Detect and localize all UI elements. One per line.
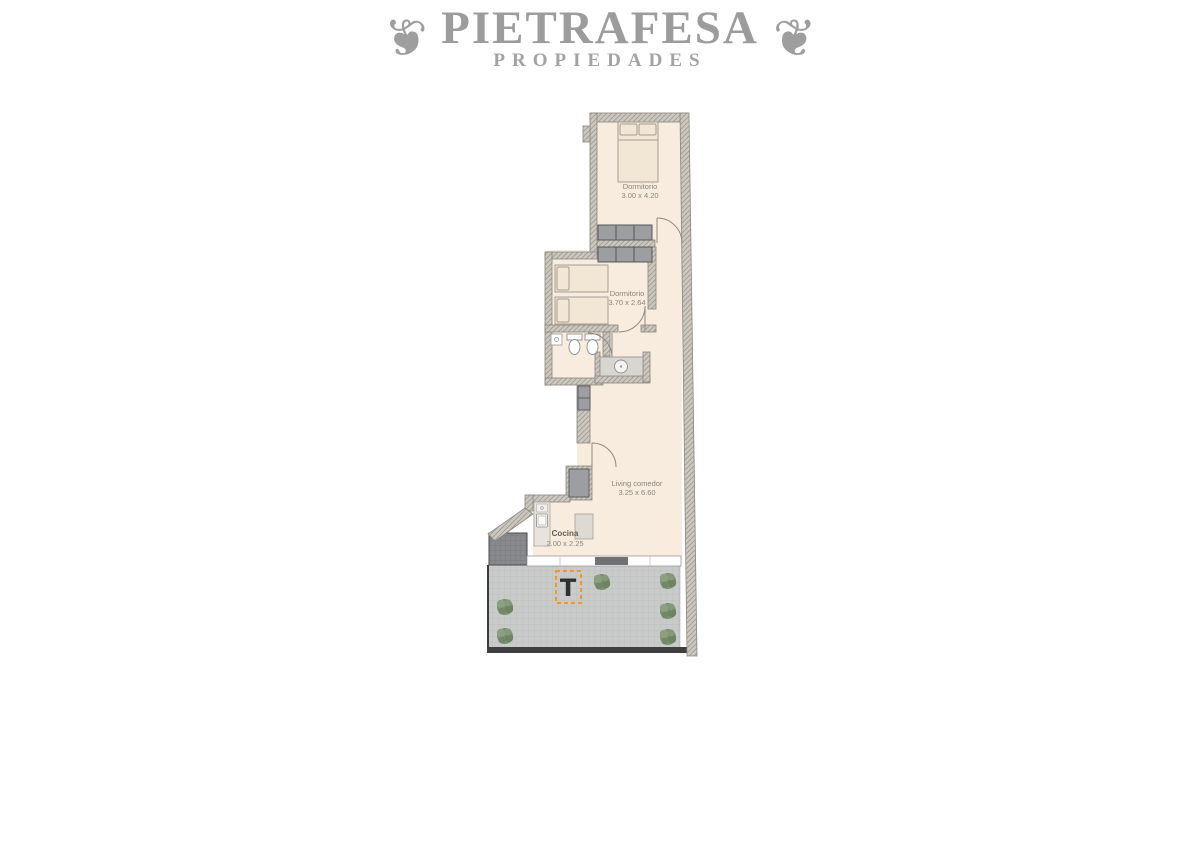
shower-icon	[551, 334, 562, 345]
window-band	[527, 556, 681, 566]
room-label-cocina: Cocina	[552, 529, 579, 538]
column-block	[569, 469, 589, 497]
double-bed-icon	[618, 122, 658, 182]
room-label-dormitorio-2: Dormitorio	[610, 289, 645, 298]
table-marker-label: T	[560, 574, 577, 602]
room-dims-dormitorio-2: 3.70 x 2.64	[608, 298, 645, 307]
bush-icon	[497, 628, 513, 644]
sink-vanity-icon	[600, 357, 643, 376]
bush-icon	[594, 574, 610, 590]
bush-icon	[660, 573, 676, 589]
room-dims-dormitorio-1: 3.00 x 4.20	[621, 191, 658, 200]
bush-icon	[660, 629, 676, 645]
room-dims-cocina: 2.00 x 2.25	[546, 539, 583, 548]
bush-icon	[497, 599, 513, 615]
page: ❦ PIETRAFESA PROPIEDADES ❦	[0, 0, 1200, 848]
room-label-dormitorio-1: Dormitorio	[623, 182, 658, 191]
room-label-living: Living comedor	[612, 479, 663, 488]
room-dims-living: 3.25 x 6.60	[618, 488, 655, 497]
bush-icon	[660, 603, 676, 619]
floorplan-image: T	[0, 0, 1200, 848]
closet-icon	[578, 386, 590, 410]
